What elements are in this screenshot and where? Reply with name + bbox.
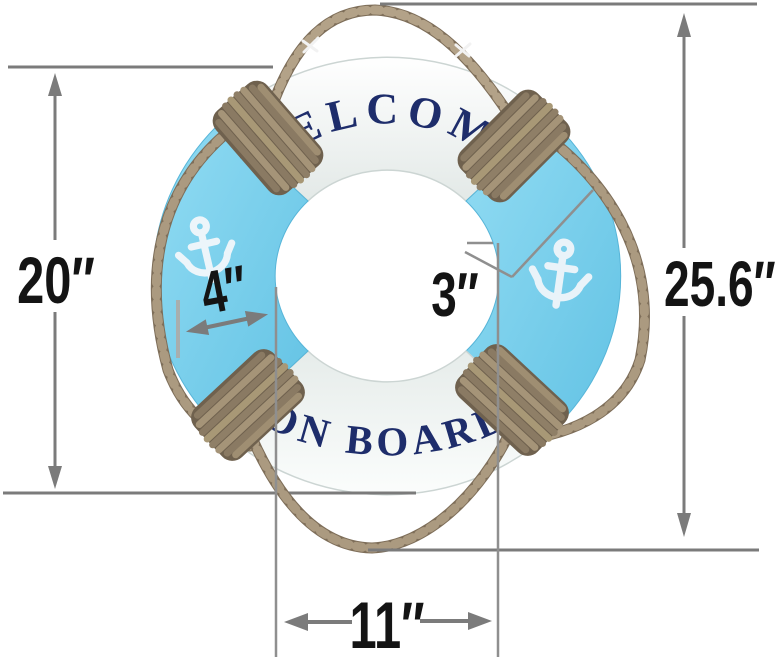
- dimension-label-11: 11″: [349, 589, 424, 663]
- dimension-label-3: 3″: [431, 260, 478, 329]
- lifebuoy-dimension-diagram: WELCOME ON BOARD: [0, 0, 779, 666]
- dimension-label-20: 20″: [17, 244, 95, 318]
- arrowhead-down: [48, 466, 62, 489]
- arrowhead-up: [48, 73, 62, 96]
- dimension-label-25-6: 25.6″: [664, 249, 776, 320]
- arrowhead-up: [677, 13, 691, 37]
- arrowhead-down: [677, 513, 691, 537]
- arrowhead-left: [284, 613, 308, 631]
- diagram-canvas: WELCOME ON BOARD: [0, 0, 779, 666]
- arrowhead-right: [468, 612, 492, 630]
